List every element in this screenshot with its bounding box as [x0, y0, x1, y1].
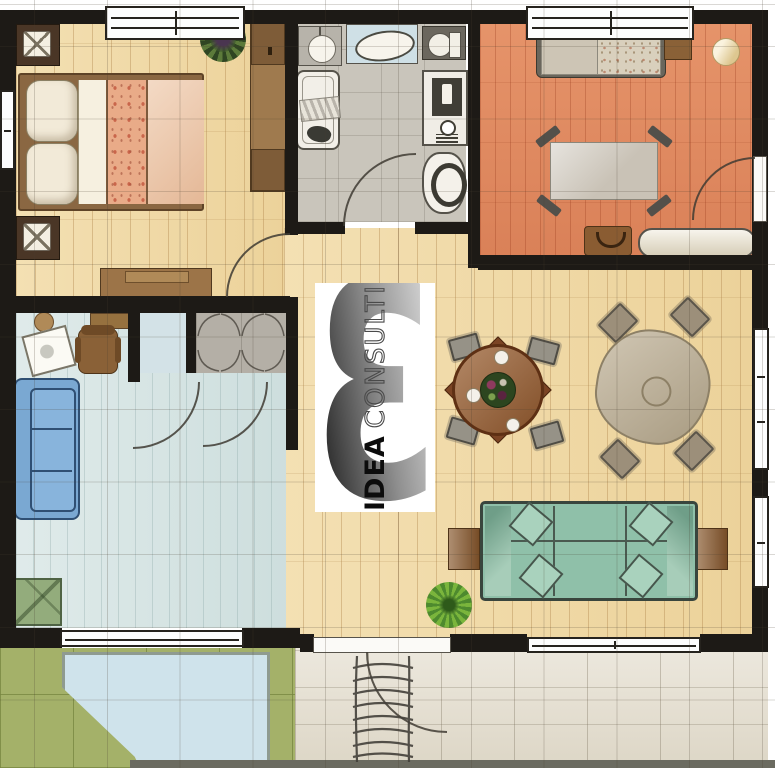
teal-sofa [480, 501, 698, 601]
dresser-top [125, 271, 189, 283]
window-east-living [753, 496, 769, 588]
wall-closet-divider [128, 313, 140, 382]
chair-arm [115, 337, 121, 363]
window-west [0, 90, 15, 170]
bidet-seat [431, 163, 467, 207]
vanity-cabinet [298, 26, 342, 66]
sofa-armrest [485, 506, 511, 596]
basin-icon [353, 27, 417, 65]
folding-closet-floor [196, 313, 286, 373]
window-pane-line [757, 376, 765, 378]
window-mullion [175, 11, 177, 35]
side-table [696, 528, 728, 570]
sofa-seat [30, 388, 76, 512]
sofa-pillow [518, 553, 563, 598]
floor-plan: 3 IDEA CONSULTING [0, 0, 775, 768]
blue-sofa [14, 378, 80, 520]
chair-arm [75, 337, 81, 363]
watermark-logo: 3 IDEA CONSULTING [315, 283, 435, 512]
window-mullion [757, 542, 765, 544]
bag [584, 226, 632, 256]
window-living-south [527, 637, 701, 653]
window-mullion [4, 130, 11, 132]
wall-closet-divider [186, 313, 196, 373]
wall-office-south-right [242, 628, 300, 648]
bench [638, 228, 756, 258]
wall-office-east [286, 313, 298, 450]
logo-brand-bold: IDEA [360, 435, 391, 511]
window-north-bedroom [105, 6, 245, 40]
bed-blanket [146, 80, 204, 204]
door-bedroom2-east [753, 156, 767, 222]
wall-bath-south-right [415, 222, 468, 234]
washer-panel [432, 78, 462, 116]
side-table [448, 528, 480, 570]
window-pane-line [757, 421, 765, 423]
wall-bedroom-south [0, 296, 290, 313]
wall-bedroom-east [285, 24, 298, 235]
plate-icon [466, 388, 481, 403]
wardrobe-section [251, 149, 285, 191]
bathtub [296, 70, 340, 150]
bed-sheet [78, 80, 107, 204]
closet-floor [140, 313, 186, 373]
table [550, 142, 658, 200]
pouf [712, 38, 740, 66]
window-north-bedroom2 [526, 6, 694, 40]
wardrobe [250, 22, 286, 192]
cushion-divider [32, 428, 72, 430]
logo-brand-light: CONSULTING [361, 283, 391, 428]
centerpiece-icon [480, 372, 516, 408]
wall-bath-south-left [295, 222, 345, 234]
window-mullion [65, 639, 239, 641]
wall-stub [285, 297, 298, 313]
lamp-icon [23, 31, 51, 57]
cushion-divider [32, 470, 72, 472]
window-mullion [614, 641, 616, 649]
washer-vents [436, 134, 458, 143]
sink-icon [308, 35, 336, 63]
pillow [26, 143, 78, 205]
bidet [422, 152, 466, 214]
wall-office-south-left [0, 628, 62, 648]
entry-door-south [313, 637, 451, 653]
wall-living-south-mid [450, 634, 527, 652]
office-chair [78, 328, 118, 374]
chair-back [81, 325, 115, 335]
table-center-ring [639, 375, 673, 409]
terrace-edge [130, 760, 775, 768]
toilet-tank-icon [449, 32, 461, 58]
lamp-icon [23, 223, 51, 251]
detergent-bottle-icon [442, 84, 452, 104]
bed-blanket-patterned [106, 80, 148, 204]
shower-tray [346, 24, 418, 64]
towel-icon [299, 96, 341, 122]
nightstand [16, 24, 60, 66]
double-bed [18, 73, 204, 211]
wall-living-south-left [300, 634, 314, 652]
wall-living-south-right [700, 634, 768, 652]
plate-icon [506, 418, 520, 432]
window-east-dining [753, 328, 769, 470]
plant-icon [426, 582, 472, 628]
wardrobe-section [251, 23, 285, 65]
window-office-south [60, 630, 244, 647]
wall-bedroom2-south [478, 255, 752, 270]
pillow [26, 80, 78, 142]
wall-bedroom2-west [468, 24, 480, 268]
window-mullion [610, 11, 612, 35]
logo-text: IDEA CONSULTING [360, 285, 390, 511]
terrace [295, 648, 768, 762]
plate-icon [494, 350, 509, 365]
toilet [422, 26, 466, 60]
bag-handle [596, 232, 626, 248]
dresser [100, 268, 212, 298]
green-armchair [14, 578, 62, 626]
nightstand [16, 216, 60, 260]
wardrobe-handle [268, 47, 272, 55]
washing-machine [422, 70, 468, 146]
